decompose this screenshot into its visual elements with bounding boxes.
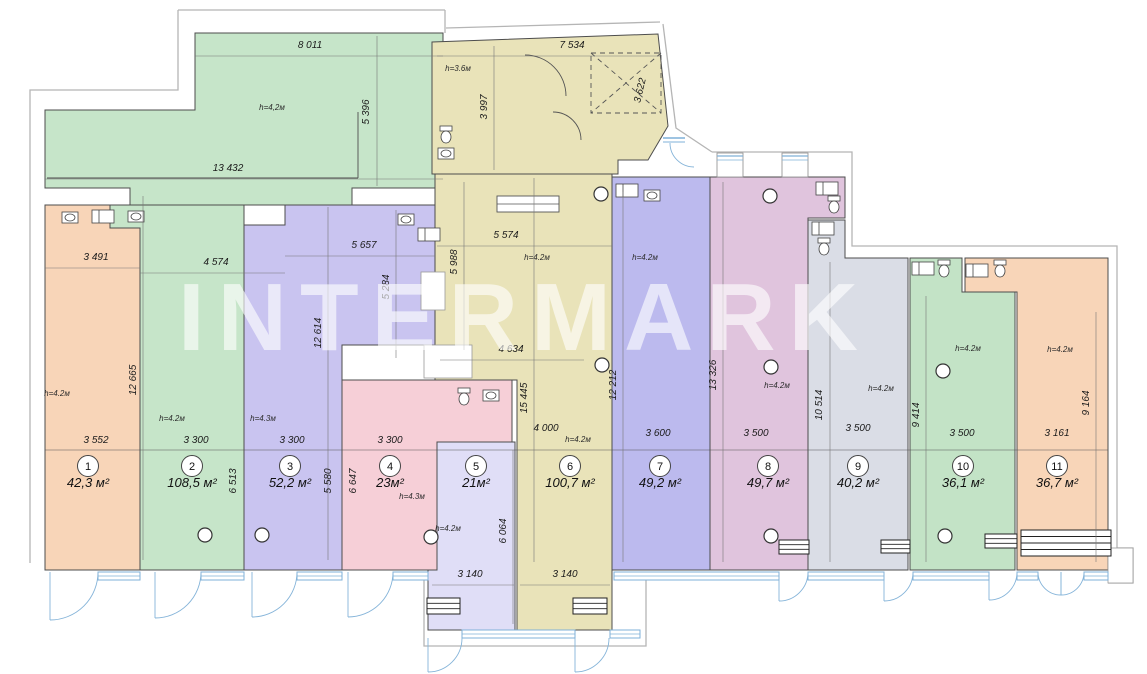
toilet-tank	[818, 238, 830, 243]
radiator	[985, 534, 1017, 548]
toilet-tank	[828, 196, 840, 201]
room-7-floor	[612, 177, 710, 570]
counter-fixture	[966, 264, 988, 277]
dimension-label: 5 284	[381, 274, 392, 299]
room-10-number: 10	[957, 461, 969, 473]
toilet-tank	[440, 126, 452, 131]
dimension-label: 5 396	[361, 99, 372, 124]
counter-fixture	[912, 262, 934, 275]
dimension-label: 9 414	[911, 402, 922, 427]
dimension-label: 3 600	[645, 428, 670, 439]
dimension-label: 3 140	[552, 569, 577, 580]
room-11-number: 11	[1051, 461, 1062, 473]
room-10-area-label: 36,1 м²	[942, 475, 985, 490]
toilet-bowl	[995, 265, 1005, 277]
room-3-number: 3	[287, 461, 293, 473]
dimension-label: 13 326	[708, 359, 719, 390]
wall-recess	[1108, 548, 1133, 583]
room-6-floor	[432, 34, 668, 174]
dimension-label: 12 614	[313, 317, 324, 348]
ceiling-height-label: h=4.2м	[565, 435, 591, 444]
dimension-label: 13 432	[213, 163, 244, 174]
structural-column	[594, 187, 608, 201]
dimension-label: 3 161	[1044, 428, 1069, 439]
room-9-area-label: 40,2 м²	[837, 475, 880, 490]
window-opening	[717, 153, 743, 177]
ceiling-height-label: h=4.2м	[764, 381, 790, 390]
dimension-label: 3 491	[83, 252, 108, 263]
floor-plan: 8 01113 4325 3967 5343 9973 6223 4914 57…	[0, 0, 1147, 674]
dimension-label: 7 534	[559, 40, 584, 51]
room-6-number: 6	[567, 461, 573, 473]
dimension-label: 3 997	[479, 94, 490, 119]
toilet-bowl	[459, 393, 469, 405]
ceiling-height-label: h=4,2м	[259, 103, 285, 112]
ceiling-height-label: h=4.2м	[632, 253, 658, 262]
counter-fixture	[816, 182, 838, 195]
ceiling-height-label: h=4.2м	[159, 414, 185, 423]
structural-column	[764, 360, 778, 374]
room-11-area-label: 36,7 м²	[1036, 475, 1079, 490]
dimension-label: 12 212	[608, 369, 619, 400]
ceiling-height-label: h=4.2м	[524, 253, 550, 262]
wall-recess	[421, 272, 445, 310]
dimension-label: 5 574	[493, 230, 518, 241]
dimension-label: 4 634	[498, 344, 523, 355]
toilet-tank	[994, 260, 1006, 265]
counter-fixture	[616, 184, 638, 197]
toilet-bowl	[829, 201, 839, 213]
dimension-label: 3 500	[743, 428, 768, 439]
room-8-number: 8	[765, 461, 771, 473]
radiator	[779, 540, 809, 554]
dimension-label: 6 647	[348, 468, 359, 493]
dimension-label: 5 657	[351, 240, 376, 251]
dimension-label: 4 000	[533, 423, 558, 434]
ceiling-height-label: h=4.2м	[435, 524, 461, 533]
structural-column	[936, 364, 950, 378]
dimension-label: 6 513	[228, 468, 239, 493]
dimension-label: 10 514	[814, 389, 825, 420]
dimension-label: 3 500	[949, 428, 974, 439]
ceiling-height-label: h=4.2м	[955, 344, 981, 353]
room-4-area-label: 23м²	[375, 475, 404, 490]
dimension-label: 6 064	[498, 518, 509, 543]
room-9-number: 9	[855, 461, 861, 473]
dimension-label: 3 552	[83, 435, 108, 446]
structural-column	[763, 189, 777, 203]
ceiling-height-label: h=4.3м	[399, 492, 425, 501]
structural-column	[198, 528, 212, 542]
dimension-label: 3 300	[279, 435, 304, 446]
structural-column	[938, 529, 952, 543]
dimension-label: 5 988	[449, 249, 460, 274]
dimension-label: 12 665	[128, 364, 139, 395]
ceiling-height-label: h=4.2м	[868, 384, 894, 393]
floor-plan-svg: 8 01113 4325 3967 5343 9973 6223 4914 57…	[0, 0, 1147, 674]
dimension-label: 9 164	[1081, 390, 1092, 415]
counter-fixture	[92, 210, 114, 223]
structural-column	[255, 528, 269, 542]
room-2-number: 2	[189, 461, 195, 473]
dimension-label: 8 011	[298, 40, 322, 51]
dimension-label: 3 300	[183, 435, 208, 446]
room-3-area-label: 52,2 м²	[269, 475, 312, 490]
room-7-area-label: 49,2 м²	[639, 475, 682, 490]
ceiling-height-label: h=4.2м	[1047, 345, 1073, 354]
room-4-number: 4	[387, 461, 393, 473]
toilet-tank	[938, 260, 950, 265]
room-7-number: 7	[657, 461, 663, 473]
dimension-label: 3 300	[377, 435, 402, 446]
room-8-area-label: 49,7 м²	[747, 475, 790, 490]
counter-fixture	[418, 228, 440, 241]
dimension-label: 4 574	[203, 257, 228, 268]
dimension-label: 3 140	[457, 569, 482, 580]
structural-column	[595, 358, 609, 372]
room-1-area-label: 42,3 м²	[67, 475, 110, 490]
dimension-label: 15 445	[519, 382, 530, 413]
toilet-bowl	[441, 131, 451, 143]
dimension-label: 3 500	[845, 423, 870, 434]
structural-column	[764, 529, 778, 543]
radiator	[573, 598, 607, 614]
toilet-bowl	[939, 265, 949, 277]
room-5-number: 5	[473, 461, 479, 473]
room-6-area-label: 100,7 м²	[545, 475, 595, 490]
ceiling-height-label: h=4.3м	[250, 414, 276, 423]
window-opening	[782, 153, 808, 177]
toilet-tank	[458, 388, 470, 393]
ceiling-height-label: h=3.6м	[445, 64, 471, 73]
toilet-bowl	[819, 243, 829, 255]
room-5-area-label: 21м²	[461, 475, 490, 490]
radiator	[427, 598, 460, 614]
room-1-number: 1	[85, 461, 91, 473]
room-2-area-label: 108,5 м²	[167, 475, 217, 490]
radiator	[881, 540, 910, 553]
ceiling-height-label: h=4.2м	[44, 389, 70, 398]
wall-recess	[424, 345, 472, 378]
counter-fixture	[812, 222, 834, 235]
dimension-label: 5 580	[323, 468, 334, 493]
